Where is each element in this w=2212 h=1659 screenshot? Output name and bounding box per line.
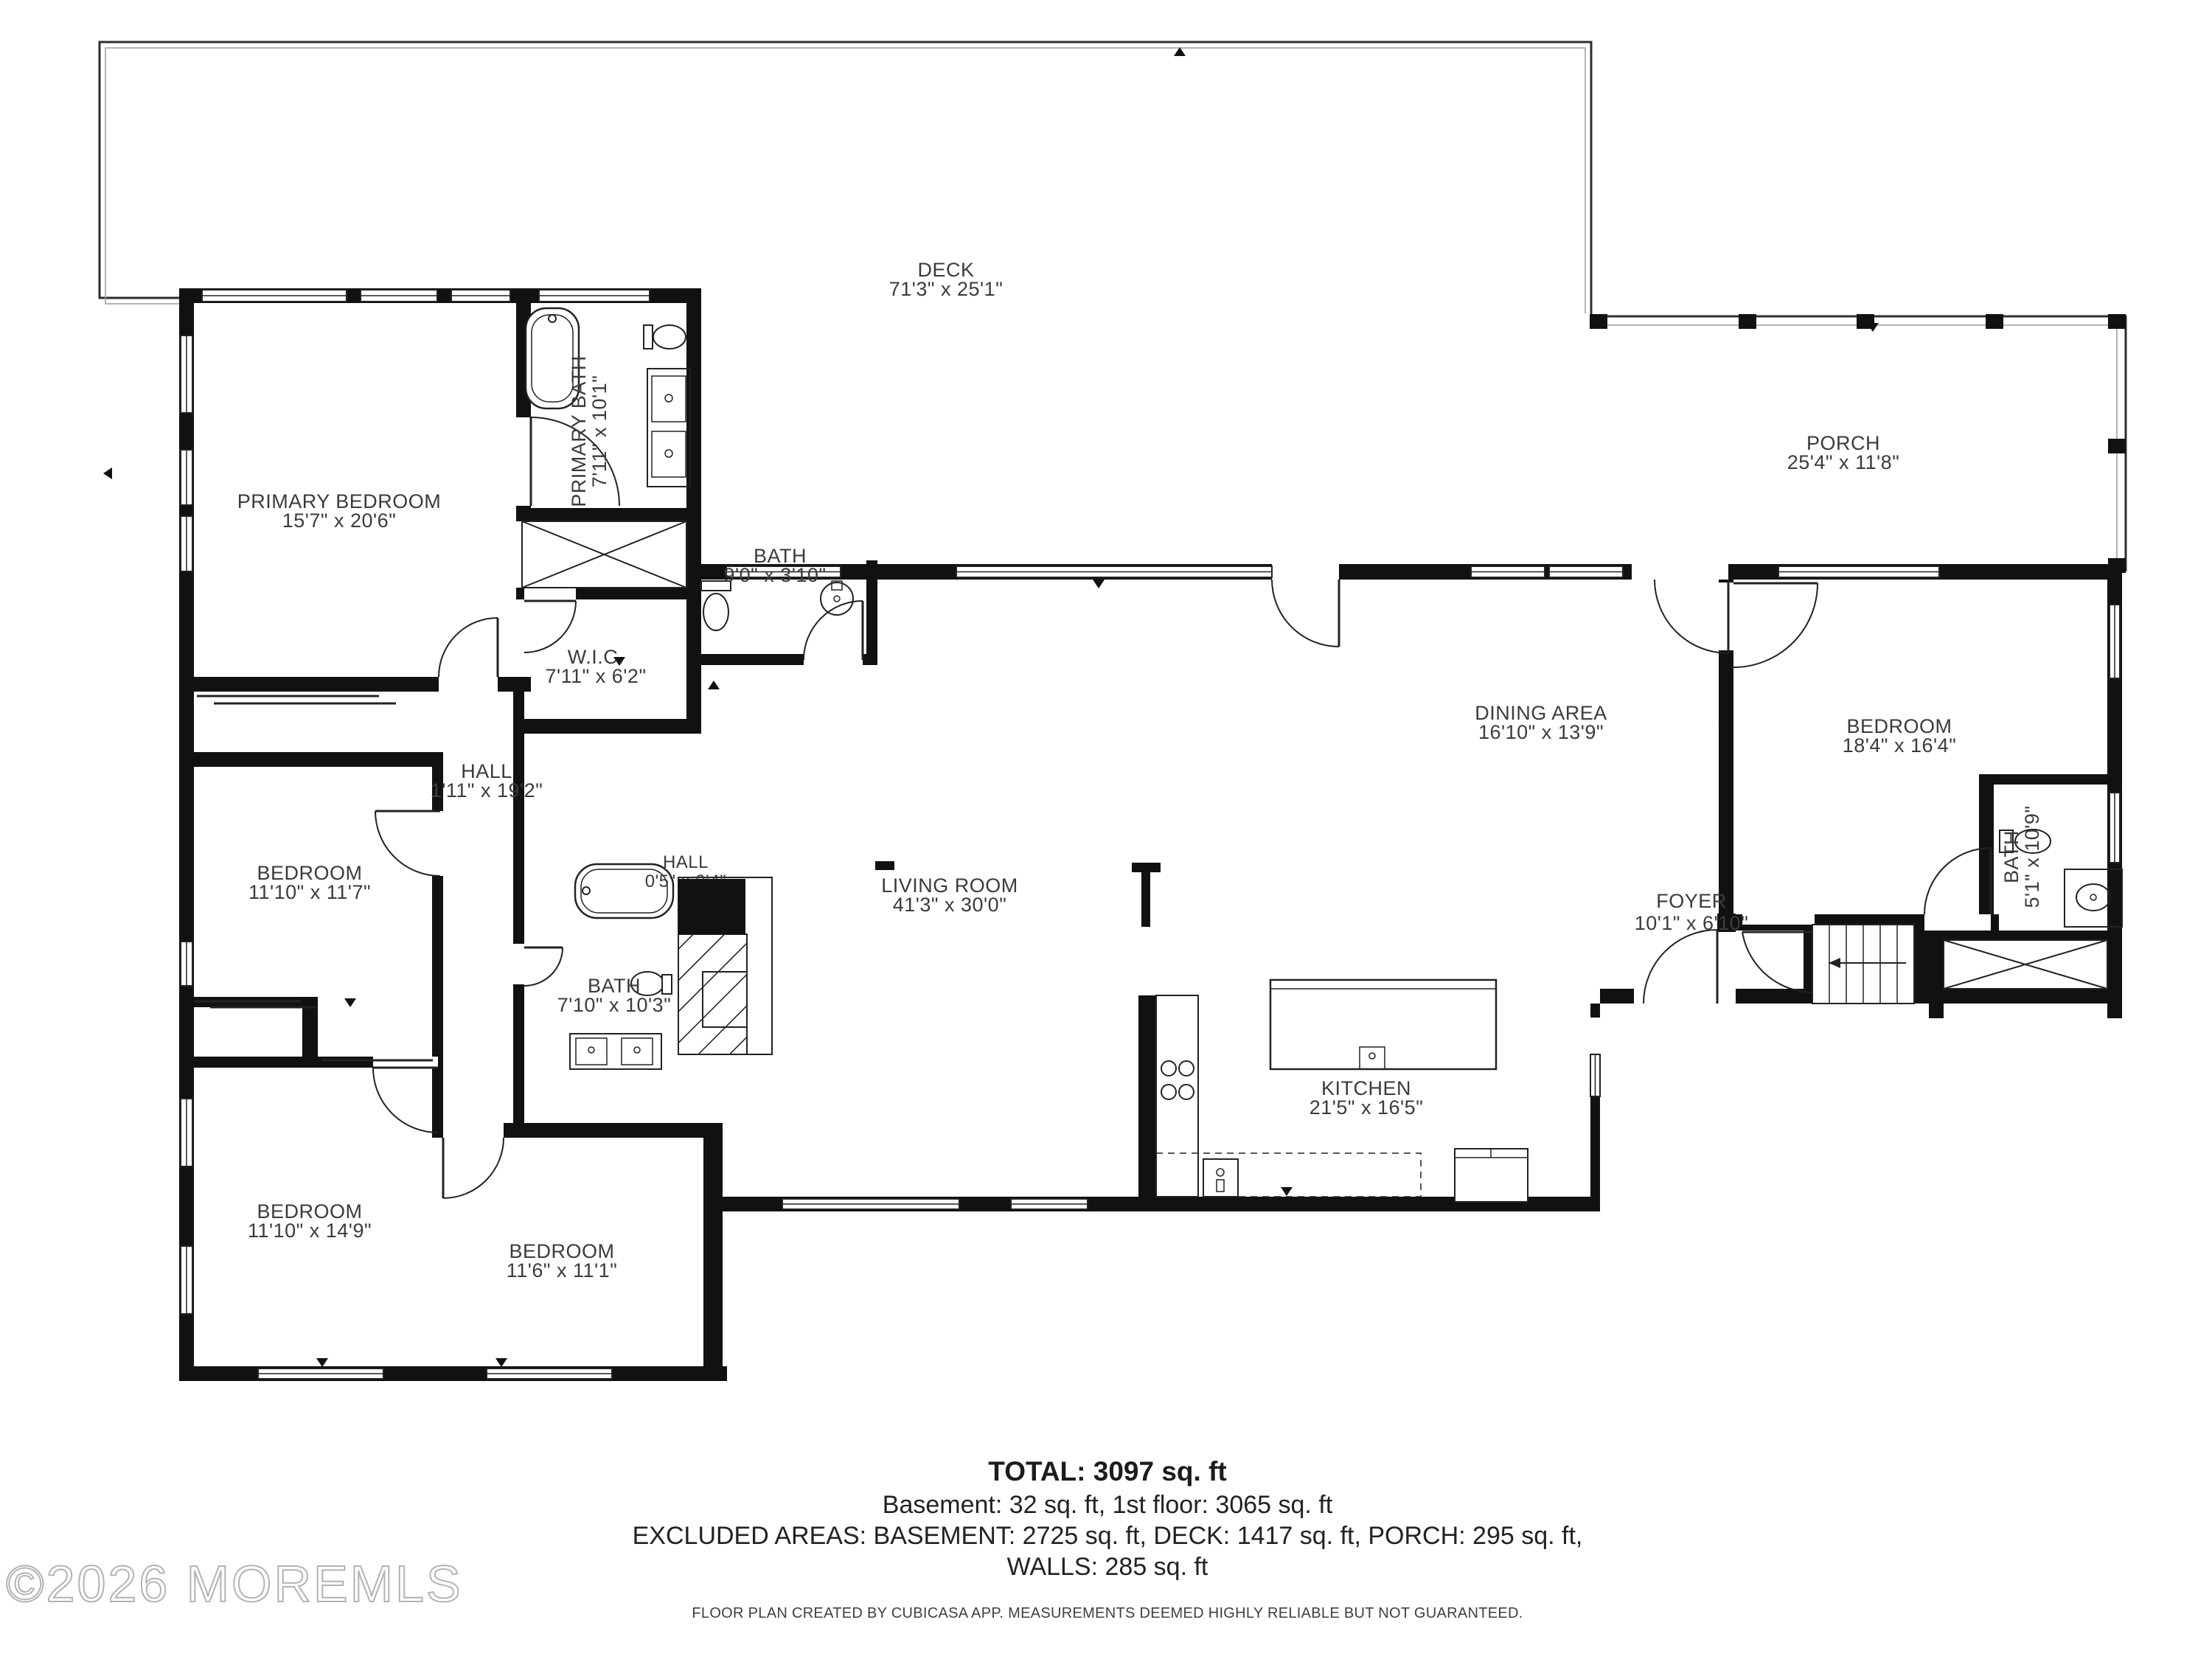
sink-drain bbox=[2090, 894, 2096, 900]
direction-arrow bbox=[1093, 580, 1105, 588]
summary-line-2: Basement: 32 sq. ft, 1st floor: 3065 sq.… bbox=[883, 1491, 1333, 1519]
direction-arrow bbox=[708, 681, 720, 689]
pedestal-sink bbox=[821, 582, 853, 615]
door-opening bbox=[1742, 914, 1815, 925]
wall bbox=[875, 861, 894, 870]
deck-outline-inner bbox=[105, 48, 1585, 313]
room-dims-foyer: 10'1" x 6'10" bbox=[1635, 912, 1749, 934]
door-opening bbox=[373, 1057, 438, 1068]
door-swing-arc bbox=[439, 618, 498, 677]
toilet-bowl bbox=[653, 325, 686, 349]
toilet-bowl bbox=[703, 594, 728, 630]
wall bbox=[1804, 914, 1929, 925]
door-swing-arc bbox=[375, 811, 440, 876]
wall bbox=[690, 560, 701, 665]
wall bbox=[1929, 923, 1944, 1018]
kitchen-island bbox=[1270, 980, 1496, 1069]
footer-text: TOTAL: 3097 sq. ftBasement: 32 sq. ft, 1… bbox=[6, 1456, 1582, 1621]
toilet-tank bbox=[644, 325, 653, 349]
door-opening bbox=[1719, 582, 1733, 650]
room-dims-bath-mid: 7'10" x 10'3" bbox=[557, 994, 672, 1016]
porch-post bbox=[2108, 314, 2126, 329]
chimney-hatch bbox=[678, 934, 747, 1054]
room-dims-primary-bedroom: 15'7" x 20'6" bbox=[282, 509, 397, 532]
door-opening bbox=[439, 677, 498, 692]
vanity-sink bbox=[2076, 884, 2110, 911]
summary-line-3: EXCLUDED AREAS: BASEMENT: 2725 sq. ft, D… bbox=[633, 1522, 1583, 1550]
direction-arrow bbox=[103, 467, 112, 479]
door-swing-arc bbox=[1655, 580, 1728, 653]
wall bbox=[1979, 774, 2122, 785]
door-swing-arc bbox=[804, 601, 863, 660]
door-swing-arc bbox=[524, 601, 576, 653]
chimney-overlay bbox=[678, 879, 745, 934]
porch-post bbox=[2108, 439, 2126, 453]
door-opening bbox=[443, 1123, 504, 1138]
door-swing-arc bbox=[443, 1138, 504, 1198]
door-swing-arc bbox=[1272, 580, 1339, 647]
sink-drain bbox=[665, 450, 672, 457]
disclaimer-text: FLOOR PLAN CREATED BY CUBICASA APP. MEAS… bbox=[692, 1605, 1523, 1621]
room-dims-dining-area: 16'10" x 13'9" bbox=[1478, 721, 1604, 743]
room-dims-living-room: 41'3" x 30'0" bbox=[893, 894, 1007, 916]
fixtures bbox=[103, 47, 2122, 1367]
wall bbox=[513, 677, 524, 1138]
room-label-primary-bath: PRIMARY BATH bbox=[568, 355, 590, 507]
door-opening bbox=[1924, 914, 1991, 931]
porch-post bbox=[1590, 314, 1607, 329]
wall bbox=[179, 752, 443, 767]
vanity bbox=[570, 1034, 661, 1069]
wall bbox=[1132, 863, 1161, 872]
room-dims-bath-right: 5'1" x 10'9" bbox=[2021, 805, 2043, 908]
room-dims-bedroom-mid-left: 11'10" x 11'7" bbox=[248, 881, 371, 903]
room-dims-deck: 71'3" x 25'1" bbox=[889, 278, 1004, 300]
room-dims-bedroom-bottom-center: 11'6" x 11'1" bbox=[507, 1259, 618, 1281]
floor-plan-drawing: DECK71'3" x 25'1"PORCH25'4" x 11'8"PRIMA… bbox=[0, 0, 2212, 1659]
room-label-foyer: FOYER bbox=[1656, 890, 1727, 912]
wall bbox=[703, 1138, 723, 1381]
wall bbox=[432, 752, 443, 1138]
door-swing-arc bbox=[373, 1068, 438, 1133]
floor-plan-page: DECK71'3" x 25'1"PORCH25'4" x 11'8"PRIMA… bbox=[0, 0, 2212, 1659]
door-opening bbox=[1634, 989, 1717, 1004]
direction-arrow bbox=[344, 998, 356, 1007]
sink-drain bbox=[834, 596, 840, 602]
room-dims-bedroom-bottom-left: 11'10" x 14'9" bbox=[248, 1220, 372, 1242]
door-opening bbox=[524, 588, 576, 599]
vanity bbox=[647, 369, 690, 487]
door-opening bbox=[1632, 564, 1728, 580]
door-opening bbox=[1590, 1018, 1600, 1054]
vanity-sink bbox=[652, 376, 686, 422]
wall bbox=[516, 508, 701, 521]
wall bbox=[1804, 914, 1812, 1004]
door-opening bbox=[513, 944, 524, 984]
room-dims-bath-top: 9'0" x 3'10" bbox=[723, 564, 826, 586]
summary-line-4: WALLS: 285 sq. ft bbox=[1007, 1553, 1208, 1581]
wall bbox=[516, 719, 701, 734]
porch-post bbox=[1986, 314, 2003, 329]
watermark-text: ©2026 MOREMLS bbox=[6, 1555, 463, 1613]
sink-drain bbox=[665, 394, 672, 402]
room-dims-porch: 25'4" x 11'8" bbox=[1787, 451, 1900, 473]
door-swing-arc bbox=[1733, 583, 1818, 667]
door-opening bbox=[804, 654, 863, 665]
vanity-sink bbox=[652, 431, 686, 477]
summary-total: TOTAL: 3097 sq. ft bbox=[988, 1456, 1226, 1486]
wall bbox=[1141, 872, 1150, 927]
chimney-solid-block bbox=[678, 879, 745, 934]
direction-arrow bbox=[1174, 47, 1186, 56]
direction-arrow bbox=[316, 1358, 328, 1367]
room-label-hall-small: HALL bbox=[663, 852, 709, 872]
room-dims-primary-bath: 7'11" x 10'1" bbox=[588, 375, 611, 488]
door-opening bbox=[516, 417, 531, 506]
wall bbox=[686, 288, 701, 734]
deck-outline bbox=[100, 42, 1591, 316]
room-label-bath-right: BATH bbox=[2000, 830, 2023, 883]
room-dims-bedroom-right: 18'4" x 16'4" bbox=[1843, 734, 1957, 757]
door-swing-arc bbox=[524, 947, 563, 986]
room-dims-hall: 1'11" x 19'2" bbox=[431, 779, 543, 801]
door-opening bbox=[1272, 564, 1339, 580]
door-opening bbox=[432, 811, 443, 876]
porch-post bbox=[1739, 314, 1756, 329]
room-dims-wic: 7'11" x 6'2" bbox=[545, 665, 646, 687]
wall bbox=[1944, 931, 2122, 940]
wall bbox=[1138, 995, 1156, 1211]
direction-arrow bbox=[495, 1358, 507, 1367]
direction-arrow bbox=[1281, 1187, 1293, 1196]
room-dims-kitchen: 21'5" x 16'5" bbox=[1310, 1096, 1424, 1119]
toilet-tank bbox=[662, 975, 672, 994]
door-opening bbox=[1717, 932, 1736, 1004]
